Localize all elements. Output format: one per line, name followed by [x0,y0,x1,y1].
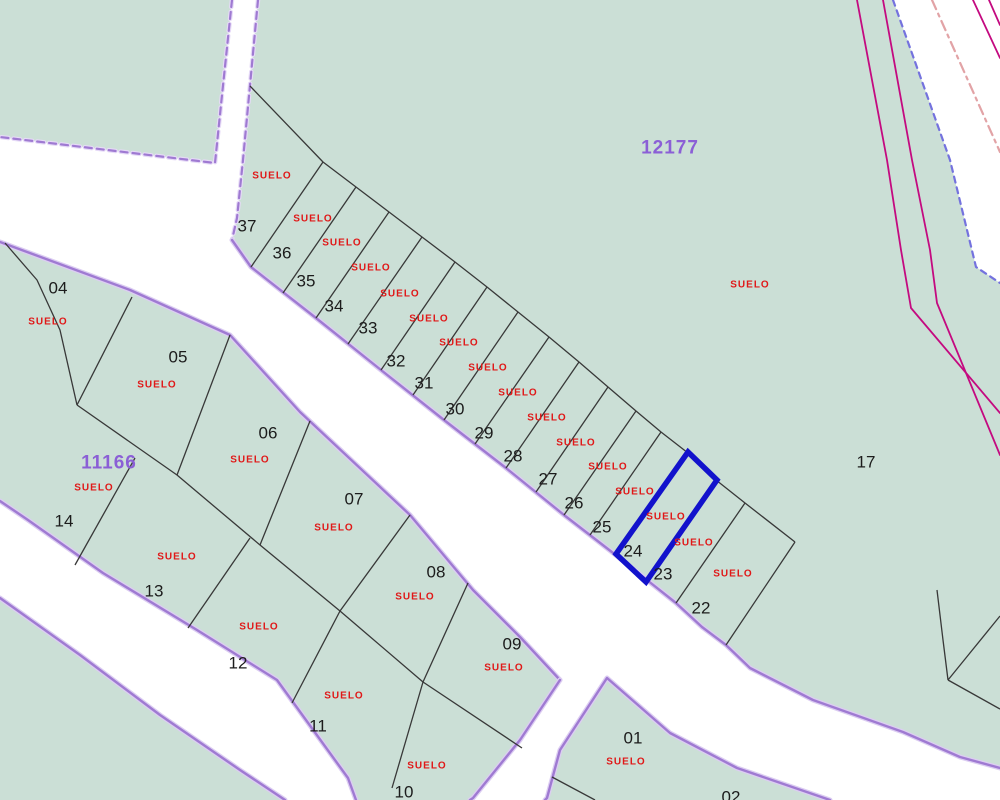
land-use-label-28: SUELO [606,757,645,768]
parcel-number-26[interactable]: 26 [565,494,584,513]
parcel-number-17[interactable]: 17 [857,453,876,472]
parcel-number-02[interactable]: 02 [722,788,741,800]
land-use-label-22: SUELO [484,663,523,674]
land-use-label-6: SUELO [439,338,478,349]
parcel-number-10[interactable]: 10 [395,783,414,800]
parcel-number-30[interactable]: 30 [446,400,465,419]
land-use-label-2: SUELO [322,238,361,249]
land-block-01-block[interactable] [545,678,830,800]
land-use-label-13: SUELO [646,512,685,523]
parcel-number-24[interactable]: 24 [624,542,643,561]
land-use-label-25: SUELO [239,622,278,633]
land-use-label-3: SUELO [351,263,390,274]
magenta-line-corner-1-halo [973,0,1000,58]
parcel-number-05[interactable]: 05 [169,348,188,367]
parcel-number-32[interactable]: 32 [387,352,406,371]
parcel-number-27[interactable]: 27 [539,470,558,489]
land-use-label-0: SUELO [252,171,291,182]
land-use-label-9: SUELO [527,413,566,424]
parcel-number-25[interactable]: 25 [593,518,612,537]
land-use-label-10: SUELO [556,438,595,449]
parcel-number-34[interactable]: 34 [325,297,344,316]
land-use-label-19: SUELO [230,455,269,466]
land-use-label-15: SUELO [713,569,752,580]
land-use-label-8: SUELO [498,388,537,399]
land-use-label-17: SUELO [28,317,67,328]
parcel-number-22[interactable]: 22 [692,599,711,618]
land-use-label-4: SUELO [380,289,419,300]
cadastral-map-viewport: SUELOSUELOSUELOSUELOSUELOSUELOSUELOSUELO… [0,0,1000,800]
parcel-number-09[interactable]: 09 [503,635,522,654]
land-use-label-21: SUELO [395,592,434,603]
land-use-label-14: SUELO [674,538,713,549]
parcel-number-37[interactable]: 37 [238,217,257,236]
parcel-number-08[interactable]: 08 [427,563,446,582]
land-block-top-left[interactable] [0,0,232,163]
land-use-label-1: SUELO [293,214,332,225]
land-use-label-7: SUELO [468,363,507,374]
parcel-number-29[interactable]: 29 [475,424,494,443]
land-use-label-20: SUELO [314,523,353,534]
magenta-line-corner-2-halo [989,0,1000,25]
parcel-number-36[interactable]: 36 [273,244,292,263]
parcel-number-11[interactable]: 11 [309,717,327,736]
parcel-number-13[interactable]: 13 [145,582,164,601]
land-use-label-16: SUELO [730,280,769,291]
parcel-number-33[interactable]: 33 [359,319,378,338]
land-use-label-24: SUELO [157,552,196,563]
block-number-12177: 12177 [641,138,699,159]
block-number-11166: 11166 [81,453,137,474]
parcel-number-01[interactable]: 01 [624,729,643,748]
parcel-number-35[interactable]: 35 [297,272,316,291]
land-use-label-5: SUELO [409,314,448,325]
cadastral-map-canvas[interactable]: SUELOSUELOSUELOSUELOSUELOSUELOSUELOSUELO… [0,0,1000,800]
parcel-number-06[interactable]: 06 [259,424,278,443]
parcel-number-28[interactable]: 28 [504,447,523,466]
salmon-dashdot-line-halo [932,0,1000,152]
parcel-number-23[interactable]: 23 [654,565,673,584]
parcel-number-04[interactable]: 04 [49,279,68,298]
parcel-number-07[interactable]: 07 [345,490,364,509]
land-use-label-23: SUELO [74,483,113,494]
land-use-label-12: SUELO [615,487,654,498]
parcel-number-31[interactable]: 31 [415,374,434,393]
parcel-number-14[interactable]: 14 [55,512,74,531]
land-use-label-27: SUELO [407,761,446,772]
land-use-label-11: SUELO [588,462,627,473]
land-use-label-26: SUELO [324,691,363,702]
land-use-label-18: SUELO [137,380,176,391]
parcel-number-12[interactable]: 12 [229,654,248,673]
